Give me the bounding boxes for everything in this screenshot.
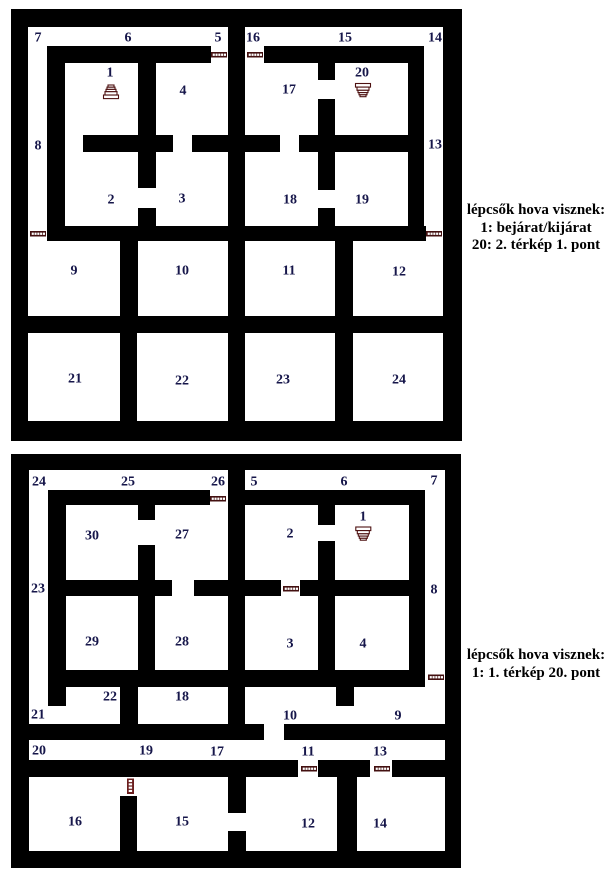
svg-text:13: 13 [428,138,442,153]
svg-text:1: 1 [107,66,114,81]
svg-text:16: 16 [246,31,260,46]
svg-text:30: 30 [85,529,99,544]
svg-text:24: 24 [392,373,406,388]
svg-text:23: 23 [276,373,290,388]
svg-text:20: 20 [32,744,46,759]
svg-text:20: 2. térkép 1. pont: 20: 2. térkép 1. pont [472,237,600,253]
svg-text:lépcsők hova visznek:: lépcsők hova visznek: [467,647,605,663]
svg-text:19: 19 [139,744,153,759]
svg-text:18: 18 [283,193,297,208]
svg-text:24: 24 [32,475,46,490]
svg-text:8: 8 [35,139,42,154]
svg-text:4: 4 [180,84,187,99]
svg-text:21: 21 [31,708,45,723]
svg-text:16: 16 [68,815,82,830]
svg-text:25: 25 [121,475,135,490]
svg-text:12: 12 [392,265,406,280]
svg-text:14: 14 [373,817,387,832]
svg-text:6: 6 [341,475,348,490]
svg-text:1: 1. térkép 20. pont: 1: 1. térkép 20. pont [472,665,600,681]
svg-text:6: 6 [125,31,132,46]
svg-text:28: 28 [175,635,189,650]
svg-text:lépcsők hova visznek:: lépcsők hova visznek: [467,202,605,218]
svg-text:10: 10 [175,264,189,279]
svg-text:5: 5 [251,475,258,490]
svg-text:29: 29 [85,635,99,650]
svg-text:3: 3 [179,192,186,207]
svg-text:3: 3 [287,637,294,652]
svg-text:15: 15 [175,815,189,830]
svg-text:1: 1 [360,510,367,525]
svg-text:2: 2 [108,193,115,208]
svg-text:22: 22 [103,690,117,705]
svg-text:19: 19 [355,193,369,208]
svg-text:1: bejárat/kijárat: 1: bejárat/kijárat [480,220,591,236]
svg-text:22: 22 [175,374,189,389]
svg-text:11: 11 [282,264,295,279]
svg-text:10: 10 [283,709,297,724]
svg-text:11: 11 [301,745,314,760]
svg-text:17: 17 [282,83,296,98]
svg-text:9: 9 [71,264,78,279]
svg-text:8: 8 [431,583,438,598]
svg-text:7: 7 [431,474,438,489]
svg-text:14: 14 [428,31,442,46]
svg-text:20: 20 [355,66,369,81]
svg-text:26: 26 [211,475,225,490]
svg-text:18: 18 [175,690,189,705]
svg-text:15: 15 [338,31,352,46]
svg-text:2: 2 [287,527,294,542]
svg-text:4: 4 [360,637,367,652]
svg-text:17: 17 [210,745,224,760]
svg-text:21: 21 [68,372,82,387]
svg-text:9: 9 [395,709,402,724]
svg-text:23: 23 [31,582,45,597]
svg-text:7: 7 [35,31,42,46]
svg-text:13: 13 [373,745,387,760]
svg-text:12: 12 [301,817,315,832]
svg-text:27: 27 [175,528,189,543]
svg-text:5: 5 [215,31,222,46]
